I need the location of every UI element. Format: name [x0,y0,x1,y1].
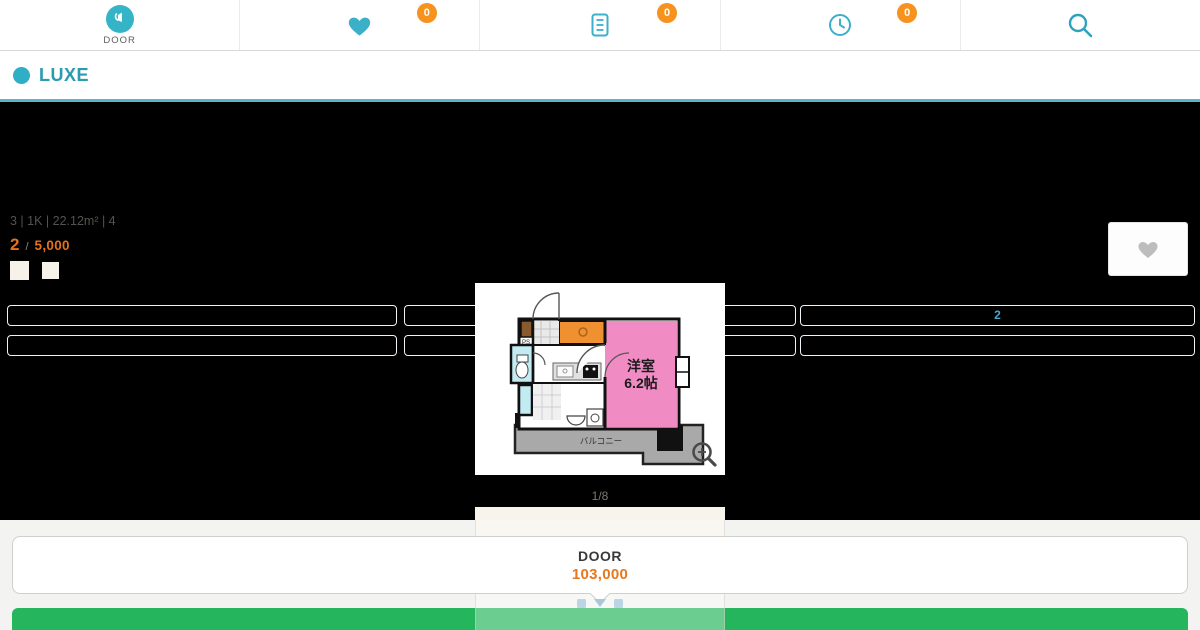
detail-box[interactable] [800,335,1195,356]
property-summary: 3 | 1K | 22.12m² | 4 [10,214,116,228]
price-card: DOOR 103,000 [12,536,1188,594]
gallery-thumb-icon[interactable] [614,599,623,608]
floorplan-drawing: バルコニー 洋室 6.2帖 PS [475,283,725,475]
favorite-button[interactable] [1108,222,1188,276]
history-nav[interactable]: 0 [721,0,961,50]
heart-icon [1136,238,1160,260]
home-nav[interactable]: DOOR [0,0,240,50]
rank-value: 5,000 [35,238,70,253]
search-nav[interactable] [961,0,1200,50]
gallery-thumb-icon[interactable] [577,599,586,608]
heart-icon [346,13,373,38]
thumbnail-placeholder [10,261,29,280]
chevron-down-icon[interactable] [593,598,607,608]
price-card-title: DOOR [578,548,622,564]
title-bar: LUXE [0,51,1200,102]
logo-label: DOOR [103,35,136,46]
rank-line: 2 / 5,000 [10,235,70,255]
search-icon [1066,11,1094,39]
header: DOOR 0 0 0 [0,0,1200,51]
balcony-label: バルコニー [580,436,622,446]
history-badge: 0 [897,3,917,23]
detail-box[interactable] [7,335,397,356]
title-dot-icon [13,67,30,84]
detail-box[interactable]: 2 [800,305,1195,326]
documents-badge: 0 [657,3,677,23]
page: DOOR 0 0 0 [0,0,1200,630]
detail-box[interactable] [7,305,397,326]
rank-number: 2 [10,235,19,255]
favorites-badge: 0 [417,3,437,23]
rank-separator: / [25,241,28,253]
thumbnail-placeholder [42,262,59,279]
clock-icon [827,12,853,38]
price-card-value: 103,000 [572,566,628,583]
documents-nav[interactable]: 0 [480,0,720,50]
gallery-counter: 1/8 [475,489,725,503]
document-icon [588,12,612,38]
door-logo-icon [106,5,134,33]
page-title: LUXE [39,65,89,86]
room-size-label: 6.2帖 [624,375,657,391]
floorplan-image[interactable]: バルコニー 洋室 6.2帖 PS [475,283,725,475]
scroll-indicator [0,598,1200,608]
room-label: 洋室 [627,358,655,374]
favorites-nav[interactable]: 0 [240,0,480,50]
